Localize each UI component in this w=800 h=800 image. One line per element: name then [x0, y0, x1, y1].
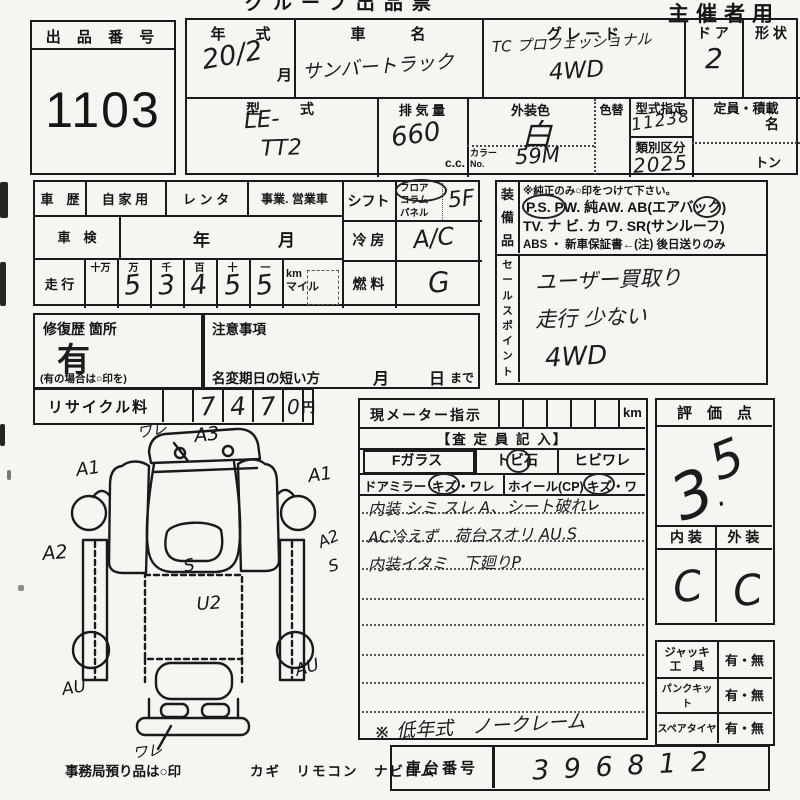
sales-point-3: 4WD: [544, 340, 608, 373]
circle-mark-ps: [522, 194, 566, 219]
assessor-note-1: 内装 シミ スレ A、シート破れ: [368, 492, 587, 520]
month-suffix: 月: [277, 64, 292, 85]
scan-artifact: [0, 262, 6, 306]
sales-points-label: セ ー ル ス ポ イ ン ト: [497, 256, 518, 382]
displacement-value: 660: [389, 117, 442, 154]
front-glass-label: Fガラス: [363, 450, 471, 470]
history-table: 車 歴 自 家 用 レ ン タ 事業. 営業車 車 検 年 月 走 行 十万 万…: [33, 180, 480, 306]
history-rental: レ ン タ: [165, 182, 247, 215]
meter-label: 現メーター指示: [370, 405, 482, 425]
diagram-a1-left: A1: [74, 457, 101, 481]
lot-number-box: 出 品 番 号 1103: [30, 20, 176, 175]
ac-value: A/C: [412, 222, 456, 254]
form-title: グループ出品票: [245, 0, 440, 13]
jack-tools-value: 有・無: [717, 642, 772, 677]
mileage-digit-10k: 5: [122, 269, 142, 302]
mileage-digit-100: 4: [188, 269, 209, 302]
scan-artifact: [0, 182, 8, 218]
shift-label: シフト: [342, 182, 395, 220]
diagram-a3: A3: [191, 422, 220, 447]
lot-number-value: 1103: [32, 62, 174, 157]
mileage-digit-1: 5: [254, 269, 274, 302]
accessories-box: ジャッキ 工 具 有・無 パンクキット 有・無 スペアタイヤ 有・無: [655, 640, 775, 746]
capacity-label: 定員・積載: [692, 99, 800, 115]
capacity-tons: トン: [755, 152, 781, 171]
inspection-month: 月: [278, 226, 295, 251]
mileage-label: 走 行: [35, 258, 84, 308]
recycle-unit: 円: [302, 390, 315, 422]
door-value: 2: [705, 42, 723, 75]
recycle-fee-label: リサイクル料: [35, 390, 162, 422]
history-private: 自 家 用: [85, 182, 165, 215]
score-label: 評 価 点: [657, 402, 772, 422]
diagram-a2-left: A2: [40, 541, 69, 565]
digit-header-100k: 十万: [84, 260, 117, 272]
scan-artifact: [18, 585, 24, 591]
ac-label: 冷 房: [342, 220, 395, 260]
assessor-note-2: AC冷えず 荷台スオリ AU.S: [368, 520, 577, 548]
recycle-digit-4: 0: [287, 395, 300, 419]
model-label: 型 式: [187, 100, 377, 118]
puncture-kit-label: パンクキット: [657, 677, 717, 712]
history-label: 車 歴: [35, 182, 85, 215]
color-change-label: 色替: [594, 100, 629, 118]
mileage-unit-checkbox: [307, 270, 339, 305]
custody-label: 事務局預り品は○印: [65, 760, 181, 780]
equipment-line3: ABS ・ 新車保証書←(注) 後日送りのみ: [523, 236, 726, 252]
recycle-digit-3: 7: [259, 391, 277, 421]
custody-items: カギ リモコン ナビロム: [250, 760, 436, 780]
deadline-month: 月: [373, 365, 389, 389]
color-no-value: 59M: [514, 143, 560, 169]
inspection-label: 車 検: [35, 215, 119, 258]
equipment-label: 装 備 品: [497, 182, 518, 253]
scan-artifact: [7, 470, 11, 480]
recycle-digit-1: 7: [199, 391, 217, 421]
form-title-cropped: グループ出品票: [205, 0, 535, 13]
diagram-s-center: S: [182, 555, 197, 577]
interior-value: C: [670, 560, 706, 613]
diagram-au-left: AU: [59, 676, 88, 700]
door-mirror-label: ドアミラー: [364, 476, 426, 495]
scan-artifact: [0, 424, 5, 446]
vehicle-info-table: 年 式 車 名 グ レ ー ド ド ア 形 状 20/2 月 サンバートラック …: [185, 18, 798, 175]
assessor-entry-label: 【査 定 員 記 入】: [360, 429, 645, 447]
equipment-line2: TV. ナ ビ. カ ワ. SR(サンルーフ): [523, 216, 725, 236]
car-damage-diagram: ワレ A3 A1 A1 A2 A2 S S U2 AU AU ワレ: [25, 420, 360, 765]
cautions-label: 注意事項: [212, 318, 266, 338]
cautions-box: 注意事項 名変期日の短い方 月 日 まで: [203, 313, 480, 389]
diagram-u2: U2: [196, 592, 222, 615]
diagram-crack-top: ワレ: [136, 420, 169, 442]
spare-tire-value: 有・無: [717, 712, 772, 743]
diagram-au-right: AU: [292, 655, 322, 681]
repair-history-box: 修復歴 箇所 有 (有の場合は○印を): [33, 313, 203, 389]
interior-label: 内 装: [657, 527, 715, 546]
mileage-digit-1k: 3: [157, 269, 176, 301]
recycle-digit-2: 4: [229, 391, 247, 421]
equipment-box: 装 備 品 ※純正のみ○印をつけて下さい。 P.S. PW. 純AW. AB(エ…: [495, 180, 768, 256]
door-label: ド ア: [684, 23, 742, 43]
history-commercial: 事業. 営業車: [247, 182, 342, 215]
diagram-crack-bottom: ワレ: [132, 741, 164, 762]
assessor-note-3: 内装イタミ 下廻りP: [368, 549, 521, 576]
name-change-deadline-label: 名変期日の短い方: [212, 367, 320, 387]
sales-points-box: セ ー ル ス ポ イ ン ト ユーザー買取り 走行 少ない 4WD: [495, 254, 768, 385]
jack-tools-label: ジャッキ 工 具: [657, 642, 717, 677]
shift-value: 5F: [447, 186, 476, 214]
diagram-a2-right: A2: [314, 526, 342, 552]
meter-unit: km: [623, 405, 642, 420]
model-value-line2: TT2: [261, 135, 303, 161]
car-name-value: サンバートラック: [301, 47, 455, 85]
crack-label: ヒビワレ: [559, 450, 645, 470]
truck-top-view-drawing: ワレ A3 A1 A1 A2 A2 S S U2 AU AU ワレ: [25, 420, 360, 765]
mileage-digit-10: 5: [223, 269, 243, 301]
fuel-value: G: [427, 265, 451, 300]
spare-tire-label: スペアタイヤ: [657, 712, 717, 743]
fuel-label: 燃 料: [342, 260, 395, 308]
circle-mark-stone: [506, 449, 531, 473]
circle-mark-shift-floor: [395, 179, 447, 202]
class-value: 2025: [632, 150, 688, 178]
sales-point-2: 走行 少ない: [535, 300, 648, 334]
inspection-year: 年: [193, 226, 210, 251]
capacity-persons: 名: [765, 114, 779, 134]
auction-sheet: { "header": {"form_title": "グループ出品票", "c…: [0, 0, 800, 800]
puncture-kit-value: 有・無: [717, 677, 772, 712]
circle-mark-wheel-scratch: [583, 473, 615, 495]
circle-mark-airbag: [693, 196, 721, 218]
lot-number-label: 出 品 番 号: [32, 24, 174, 50]
deadline-day: 日: [429, 365, 445, 389]
repair-history-note: (有の場合は○印を): [40, 371, 127, 386]
circle-mark-mirror-scratch: [428, 473, 460, 495]
name-label: 車 名: [294, 23, 482, 43]
score-box: 評 価 点 3.5 内 装 外 装 C C: [655, 398, 775, 625]
model-value-line1: LE-: [243, 106, 280, 134]
diagram-a1-right: A1: [306, 463, 333, 487]
chassis-number-box: 車台番号 3 9 6 8 1 2: [390, 745, 770, 791]
chassis-number-value: 3 9 6 8 1 2: [531, 746, 711, 786]
exterior-value: C: [730, 564, 766, 617]
score-value: 3.5: [660, 438, 762, 536]
exterior-label: 外 装: [715, 527, 772, 546]
sales-point-1: ユーザー買取り: [535, 261, 683, 296]
shape-label: 形 状: [742, 23, 800, 43]
grade-value-line2: 4WD: [548, 56, 605, 86]
assessor-notes-box: 現メーター指示 km 【査 定 員 記 入】 Fガラス トビ石 ヒビワレ ドアミ…: [358, 398, 648, 740]
displacement-label: 排 気 量: [377, 100, 467, 118]
displacement-unit: c.c.: [445, 156, 465, 170]
diagram-s-right: S: [326, 555, 341, 576]
deadline-suffix: まで: [450, 369, 474, 386]
color-no-label: カラー No.: [470, 148, 497, 170]
